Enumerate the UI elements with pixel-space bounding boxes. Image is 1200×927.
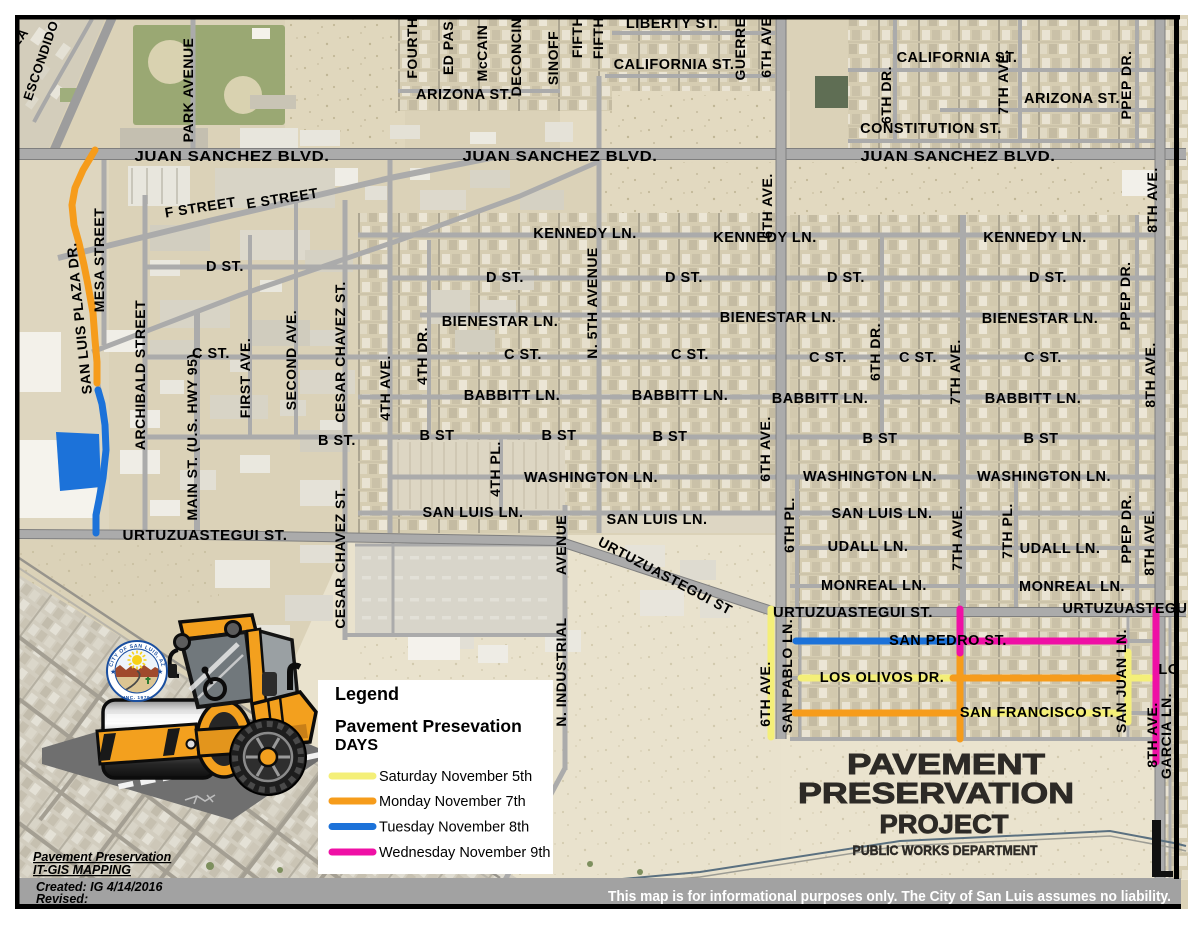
svg-text:BIENESTAR LN.: BIENESTAR LN. — [720, 310, 837, 326]
svg-text:ED PAS: ED PAS — [440, 21, 456, 75]
svg-text:SAN JUAN LN.: SAN JUAN LN. — [1113, 629, 1129, 733]
svg-text:JUAN SANCHEZ BLVD.: JUAN SANCHEZ BLVD. — [861, 148, 1056, 165]
svg-text:SAN FRANCISCO ST.: SAN FRANCISCO ST. — [960, 705, 1114, 721]
svg-text:AVENUE: AVENUE — [553, 515, 569, 575]
svg-text:6TH AVE.: 6TH AVE. — [759, 173, 775, 238]
svg-text:6TH PL.: 6TH PL. — [781, 497, 797, 553]
svg-text:8TH AVE.: 8TH AVE. — [1144, 167, 1160, 232]
svg-text:Tuesday November 8th: Tuesday November 8th — [379, 820, 529, 836]
svg-text:B ST: B ST — [419, 428, 454, 444]
svg-text:WASHINGTON LN.: WASHINGTON LN. — [803, 469, 937, 485]
svg-text:8TH AVE.: 8TH AVE. — [1142, 342, 1158, 407]
svg-text:MONREAL LN.: MONREAL LN. — [1019, 579, 1125, 595]
svg-text:Revised:: Revised: — [36, 892, 88, 906]
svg-text:Saturday November 5th: Saturday November 5th — [379, 769, 532, 785]
svg-text:C ST.: C ST. — [899, 350, 937, 366]
svg-text:DAYS: DAYS — [335, 737, 378, 754]
svg-text:★: ★ — [110, 668, 116, 676]
svg-text:URTUZUASTEGU: URTUZUASTEGU — [1063, 601, 1188, 617]
svg-text:BIENESTAR LN.: BIENESTAR LN. — [442, 314, 559, 330]
svg-text:PPEP DR.: PPEP DR. — [1117, 261, 1133, 330]
svg-text:6TH DR.: 6TH DR. — [878, 66, 894, 124]
svg-text:IT-GIS MAPPING: IT-GIS MAPPING — [33, 863, 131, 877]
svg-text:7TH AVE.: 7TH AVE. — [949, 505, 965, 570]
svg-text:4TH AVE.: 4TH AVE. — [377, 355, 393, 420]
svg-text:This map is for informational: This map is for informational purposes o… — [608, 889, 1171, 905]
svg-text:WASHINGTON LN.: WASHINGTON LN. — [524, 470, 658, 486]
svg-text:UDALL LN.: UDALL LN. — [828, 539, 909, 555]
svg-text:FIFTH: FIFTH — [569, 16, 585, 58]
svg-text:B ST: B ST — [652, 429, 687, 445]
svg-text:6TH AVE.: 6TH AVE. — [758, 12, 774, 77]
svg-text:LOS OLIVOS DR.: LOS OLIVOS DR. — [820, 670, 945, 686]
svg-text:D ST.: D ST. — [827, 270, 865, 286]
svg-text:B ST: B ST — [1023, 431, 1058, 447]
svg-text:URTUZUASTEGUI ST.: URTUZUASTEGUI ST. — [123, 528, 288, 544]
svg-text:B ST: B ST — [862, 431, 897, 447]
svg-text:D ST.: D ST. — [665, 270, 703, 286]
svg-text:PPEP DR.: PPEP DR. — [1118, 50, 1134, 119]
svg-text:PUBLIC WORKS DEPARTMENT: PUBLIC WORKS DEPARTMENT — [853, 842, 1038, 858]
svg-text:Wednesday November 9th: Wednesday November 9th — [379, 845, 550, 861]
svg-text:BABBITT LN.: BABBITT LN. — [632, 388, 729, 404]
svg-text:GARCIA LN.: GARCIA LN. — [1158, 693, 1174, 779]
svg-text:PARK AVENUE: PARK AVENUE — [180, 38, 196, 143]
svg-text:PRESERVATION: PRESERVATION — [798, 778, 1074, 810]
svg-text:Monday November 7th: Monday November 7th — [379, 794, 526, 810]
svg-text:4TH PL.: 4TH PL. — [487, 441, 503, 497]
svg-text:SAN PABLO LN.: SAN PABLO LN. — [779, 619, 795, 733]
svg-text:BABBITT LN.: BABBITT LN. — [772, 391, 869, 407]
svg-text:SAN PEDRO ST.: SAN PEDRO ST. — [889, 633, 1007, 649]
svg-text:ARIZONA ST.: ARIZONA ST. — [1024, 91, 1120, 107]
svg-text:4TH DR.: 4TH DR. — [414, 327, 430, 385]
svg-text:MONREAL LN.: MONREAL LN. — [821, 578, 927, 594]
svg-text:Pavement Preservation: Pavement Preservation — [33, 850, 172, 864]
svg-text:C ST.: C ST. — [1024, 350, 1062, 366]
svg-text:BIENESTAR LN.: BIENESTAR LN. — [982, 311, 1099, 327]
svg-text:7TH AVE.: 7TH AVE. — [995, 49, 1011, 114]
svg-text:FIFTH: FIFTH — [590, 17, 606, 59]
svg-text:C ST.: C ST. — [809, 350, 847, 366]
svg-text:C ST.: C ST. — [504, 347, 542, 363]
svg-text:D ST.: D ST. — [486, 270, 524, 286]
svg-text:DECONCIN: DECONCIN — [508, 18, 524, 97]
svg-text:BABBITT LN.: BABBITT LN. — [464, 388, 561, 404]
svg-text:JUAN SANCHEZ BLVD.: JUAN SANCHEZ BLVD. — [135, 148, 330, 165]
svg-text:ARCHIBALD STREET: ARCHIBALD STREET — [132, 300, 148, 450]
svg-text:D ST.: D ST. — [1029, 270, 1067, 286]
svg-text:GUERRE: GUERRE — [732, 18, 748, 81]
svg-text:Pavement Presevation: Pavement Presevation — [335, 716, 522, 736]
svg-text:ARIZONA ST.: ARIZONA ST. — [416, 87, 512, 103]
svg-text:SAN LUIS LN.: SAN LUIS LN. — [606, 512, 707, 528]
svg-text:CESAR CHAVEZ ST.: CESAR CHAVEZ ST. — [332, 487, 348, 629]
svg-text:6TH DR.: 6TH DR. — [867, 323, 883, 381]
svg-text:6TH AVE.: 6TH AVE. — [757, 661, 773, 726]
svg-text:BABBITT LN.: BABBITT LN. — [985, 391, 1082, 407]
svg-text:SECOND AVE.: SECOND AVE. — [283, 310, 299, 410]
svg-text:INC. 1979: INC. 1979 — [124, 695, 150, 701]
svg-text:McCAIN: McCAIN — [474, 25, 490, 82]
svg-text:FOURTH: FOURTH — [404, 17, 420, 78]
svg-text:SAN LUIS LN.: SAN LUIS LN. — [831, 506, 932, 522]
svg-text:7TH AVE.: 7TH AVE. — [947, 339, 963, 404]
svg-text:FIRST AVE.: FIRST AVE. — [237, 338, 253, 418]
svg-text:8TH AVE.: 8TH AVE. — [1141, 510, 1157, 575]
svg-text:N. INDUSTRIAL: N. INDUSTRIAL — [553, 617, 569, 726]
svg-text:★: ★ — [157, 668, 163, 676]
svg-text:PPEP DR.: PPEP DR. — [1118, 494, 1134, 563]
svg-text:KENNEDY LN.: KENNEDY LN. — [983, 230, 1087, 246]
svg-text:SAN LUIS LN.: SAN LUIS LN. — [422, 505, 523, 521]
svg-text:UDALL LN.: UDALL LN. — [1020, 541, 1101, 557]
svg-text:PAVEMENT: PAVEMENT — [847, 749, 1046, 781]
svg-text:CESAR CHAVEZ ST.: CESAR CHAVEZ ST. — [332, 281, 348, 423]
svg-text:N. 5TH AVENUE: N. 5TH AVENUE — [584, 247, 600, 359]
svg-text:JUAN SANCHEZ BLVD.: JUAN SANCHEZ BLVD. — [463, 148, 658, 165]
svg-text:7TH PL.: 7TH PL. — [999, 503, 1015, 559]
svg-text:KENNEDY LN.: KENNEDY LN. — [533, 226, 637, 242]
svg-text:WASHINGTON LN.: WASHINGTON LN. — [977, 469, 1111, 485]
svg-text:MESA STREET: MESA STREET — [91, 208, 107, 313]
svg-text:CALIFORNIA ST.: CALIFORNIA ST. — [614, 57, 735, 73]
svg-text:PROJECT: PROJECT — [880, 809, 1009, 839]
svg-text:B ST: B ST — [541, 428, 576, 444]
svg-text:MAIN ST. (U.S. HWY 95): MAIN ST. (U.S. HWY 95) — [184, 353, 200, 520]
svg-text:URTUZUASTEGUI ST.: URTUZUASTEGUI ST. — [773, 605, 933, 621]
svg-text:C ST.: C ST. — [671, 347, 709, 363]
svg-text:B ST.: B ST. — [318, 433, 356, 449]
svg-text:6TH AVE.: 6TH AVE. — [757, 416, 773, 481]
svg-text:D ST.: D ST. — [206, 259, 244, 275]
svg-text:Legend: Legend — [335, 684, 399, 704]
svg-text:SINOFF: SINOFF — [545, 31, 561, 85]
